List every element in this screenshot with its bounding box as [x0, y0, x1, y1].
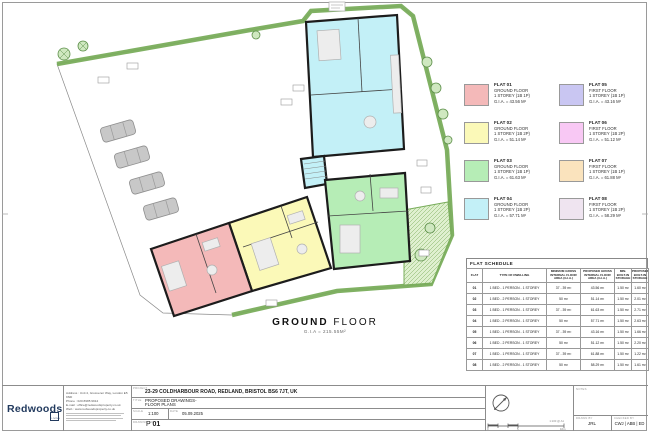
- legend-item-text: FLAT 04GROUND FLOOR1 STOREY (1B 2P)G.I.A…: [494, 196, 530, 218]
- checked-by-label: CHECKED BY: [614, 416, 634, 420]
- schedule-column-header: TYPE OF DWELLING: [483, 269, 547, 283]
- schedule-row: 051 BED - 1 PERSON - 1 STOREY37 - 39 m²4…: [467, 326, 649, 337]
- legend-item-flat-01: FLAT 01GROUND FLOOR1 STOREY (1B 1P)G.I.A…: [464, 82, 559, 120]
- legend-color-swatch: [464, 122, 489, 144]
- legend-color-swatch: [559, 198, 584, 220]
- schedule-header-row: FLATTYPE OF DWELLINGMINIMUM GROSS INTERN…: [467, 269, 649, 283]
- date-label: DATE: [170, 409, 178, 413]
- plan-gia: G.I.A = 215.55M²: [235, 329, 415, 334]
- legend-item-text: FLAT 01GROUND FLOOR1 STOREY (1B 1P)G.I.A…: [494, 82, 530, 104]
- legend-item-flat-02: FLAT 02GROUND FLOOR1 STOREY (1B 2P)G.I.A…: [464, 120, 559, 158]
- schedule-row: 071 BED - 1 PERSON - 1 STOREY37 - 39 m²6…: [467, 348, 649, 359]
- notes-label: NOTES: [576, 387, 587, 391]
- top-registration-box: [329, 2, 345, 11]
- legend-color-swatch: [464, 160, 489, 182]
- hatched-garden: [404, 202, 451, 285]
- legend-item-text: FLAT 08FIRST FLOOR1 STOREY (1B 2P)G.I.A.…: [589, 196, 625, 218]
- schedule-row: 021 BED - 2 PERSON - 1 STOREY50 m²51.14 …: [467, 293, 649, 304]
- drawn-by-value: JRL: [573, 421, 611, 426]
- legal-microprint: [66, 413, 124, 414]
- schedule-row: 061 BED - 2 PERSON - 1 STOREY50 m²51.12 …: [467, 337, 649, 348]
- legal-microprint: [66, 418, 123, 419]
- scale-bar-label: 1:100 @ A1: [549, 419, 564, 423]
- svg-text:0: 0: [487, 427, 489, 430]
- legend-color-swatch: [559, 160, 584, 182]
- legend-color-swatch: [464, 198, 489, 220]
- legend-item-flat-07: FLAT 07FIRST FLOOR1 STOREY (1B 1P)G.I.A.…: [559, 158, 650, 196]
- tb-divider: [131, 408, 486, 409]
- title-label: TITLE: [133, 398, 142, 402]
- drawing-title: PROPOSED DRAWINGS- FLOOR PLANS: [145, 399, 197, 409]
- tb-divider: [168, 408, 169, 419]
- legend-color-swatch: [559, 84, 584, 106]
- legend-item-flat-03: FLAT 03GROUND FLOOR1 STOREY (1B 1P)G.I.A…: [464, 158, 559, 196]
- drawing-number: P 01: [146, 421, 160, 428]
- project-value: 23-29 COLDHARBOUR ROAD, REDLAND, BRISTOL…: [145, 389, 297, 395]
- checked-by-value: CWJ | ABB | ED: [611, 421, 648, 426]
- svg-text:10m: 10m: [560, 427, 566, 430]
- flat-04-vestibule: [301, 156, 327, 188]
- legend-item-flat-05: FLAT 05FIRST FLOOR1 STOREY (1B 1P)G.I.A.…: [559, 82, 650, 120]
- drawing-sheet: { "plan": { "title_bold": "GROUND", "tit…: [0, 0, 650, 433]
- legend-item-text: FLAT 02GROUND FLOOR1 STOREY (1B 2P)G.I.A…: [494, 120, 530, 142]
- schedule-column-header: MINIMUM GROSS INTERNAL FLOOR AREA (G.I.A…: [547, 269, 581, 283]
- legend-item-flat-08: FLAT 08FIRST FLOOR1 STOREY (1B 2P)G.I.A.…: [559, 196, 650, 234]
- legend-color-swatch: [464, 84, 489, 106]
- legend-item-flat-04: FLAT 04GROUND FLOOR1 STOREY (1B 2P)G.I.A…: [464, 196, 559, 234]
- schedule-row: 011 BED - 1 PERSON - 1 STOREY37 - 39 m²4…: [467, 282, 649, 293]
- scale-label: SCALE: [133, 409, 143, 413]
- schedule-row: 031 BED - 1 PERSON - 1 STOREY37 - 39 m²6…: [467, 304, 649, 315]
- titleblock-top-line: [2, 385, 648, 386]
- plan-title: GROUND FLOOR: [235, 317, 415, 328]
- legal-microprint: [66, 420, 116, 421]
- flat-schedule: FLAT SCHEDULE FLATTYPE OF DWELLINGMINIMU…: [466, 258, 648, 371]
- scale-value: 1:100: [148, 411, 158, 416]
- schedule-column-header: PROPOSED BUILT-IN STORAGE: [632, 269, 649, 283]
- company-logo-mark-icon: LIVING: [50, 412, 59, 421]
- legend-item-flat-06: FLAT 06FIRST FLOOR1 STOREY (1B 2P)G.I.A.…: [559, 120, 650, 158]
- plan-caption: GROUND FLOOR G.I.A = 215.55M²: [235, 317, 415, 334]
- drawn-by-label: DRAWN BY: [576, 416, 593, 420]
- legend-item-text: FLAT 03GROUND FLOOR1 STOREY (1B 1P)G.I.A…: [494, 158, 530, 180]
- legend-color-swatch: [559, 122, 584, 144]
- date-value: 05.09.2025: [182, 411, 203, 416]
- schedule-title: FLAT SCHEDULE: [466, 258, 648, 268]
- schedule-table: FLATTYPE OF DWELLINGMINIMUM GROSS INTERN…: [466, 268, 649, 371]
- legend-item-text: FLAT 06FIRST FLOOR1 STOREY (1B 2P)G.I.A.…: [589, 120, 625, 142]
- flat-03-area: [325, 173, 410, 269]
- tb-divider: [131, 419, 486, 420]
- schedule-row: 041 BED - 2 PERSON - 1 STOREY50 m²57.71 …: [467, 315, 649, 326]
- company-address-block: Address : Unit 4, Grosvenor Way, London …: [66, 391, 130, 421]
- schedule-column-header: FLAT: [467, 269, 483, 283]
- flat-legend: FLAT 01GROUND FLOOR1 STOREY (1B 1P)G.I.A…: [464, 82, 650, 234]
- legend-item-text: FLAT 07FIRST FLOOR1 STOREY (1B 1P)G.I.A.…: [589, 158, 625, 180]
- tb-divider: [63, 385, 64, 431]
- scale-bar: 1:100 @ A1 0 5 10m: [486, 419, 570, 430]
- address-line: Address : Unit 4, Grosvenor Way, London …: [66, 391, 130, 399]
- legend-item-text: FLAT 05FIRST FLOOR1 STOREY (1B 1P)G.I.A.…: [589, 82, 625, 104]
- legal-microprint: [66, 415, 121, 416]
- svg-text:5: 5: [517, 427, 519, 430]
- schedule-row: 081 BED - 2 PERSON - 1 STOREY50 m²58.29 …: [467, 359, 649, 370]
- schedule-column-header: MIN. BUILT-IN STORAGE: [615, 269, 632, 283]
- schedule-column-header: PROPOSED GROSS INTERNAL FLOOR AREA (G.I.…: [581, 269, 615, 283]
- address-line: Web : www.redwoodsproperty.co.uk: [66, 407, 130, 411]
- north-arrow-icon: [486, 390, 516, 418]
